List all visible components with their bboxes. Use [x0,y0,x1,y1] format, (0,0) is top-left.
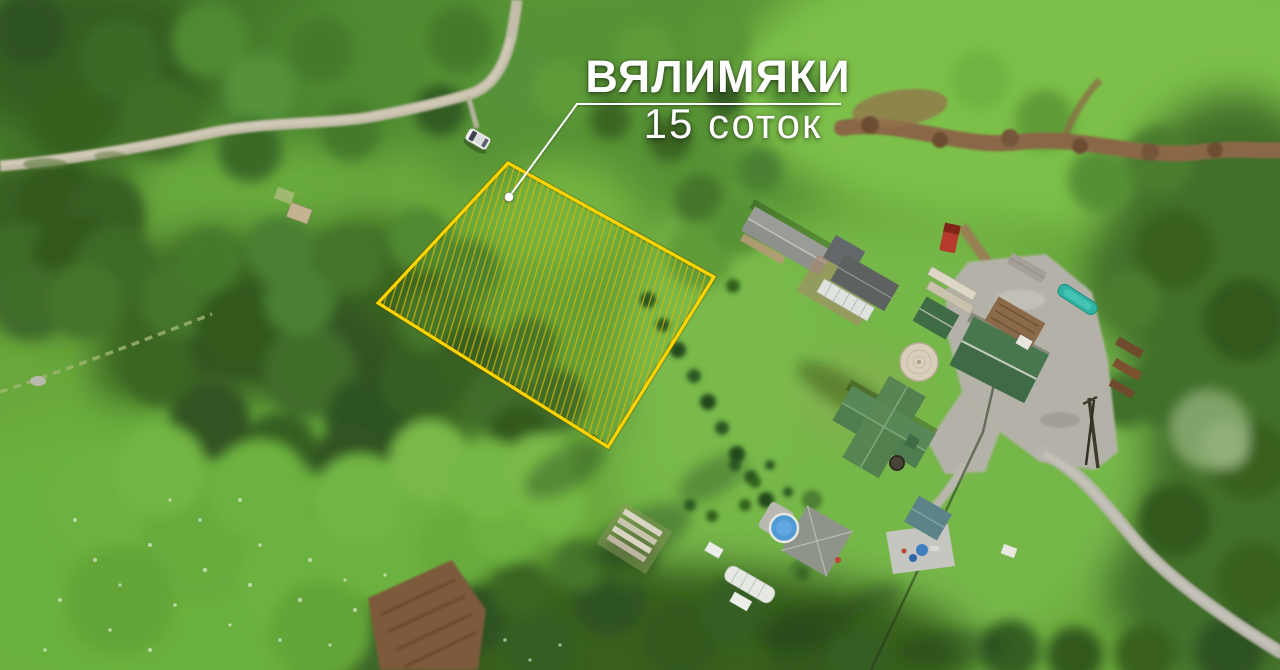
aerial-photo: ВЯЛИМЯКИ 15 соток [0,0,1280,670]
rock [30,376,46,386]
plot-name-label: ВЯЛИМЯКИ [518,52,918,102]
plot-marker-dot [504,192,513,201]
plot-area-label: 15 соток [533,101,933,147]
fire-pit [890,456,904,470]
red-item [835,557,841,563]
round-hay-circle [900,343,938,381]
